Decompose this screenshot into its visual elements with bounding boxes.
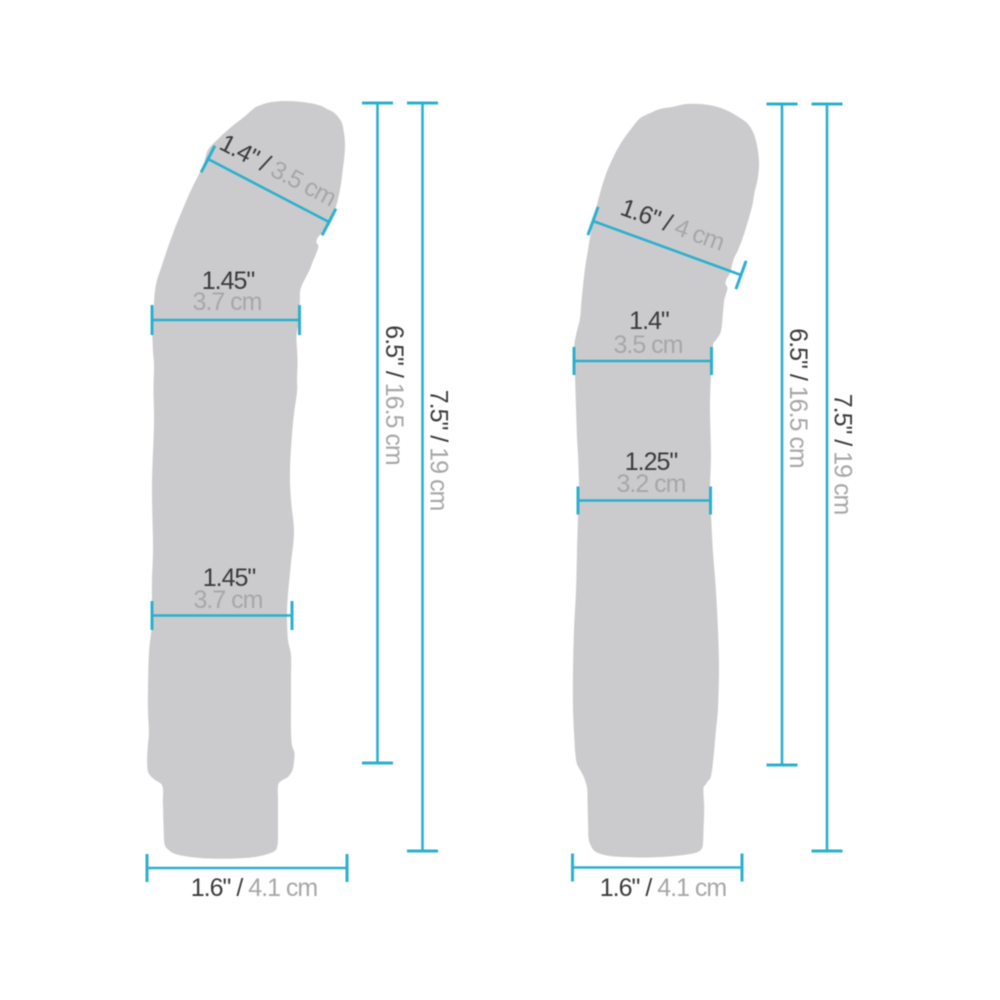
svg-text:1.6" / 4.1 cm: 1.6" / 4.1 cm <box>191 874 318 902</box>
svg-text:3.7 cm: 3.7 cm <box>192 288 261 316</box>
svg-text:6.5" / 16.5 cm: 6.5" / 16.5 cm <box>784 328 812 468</box>
svg-text:3.7 cm: 3.7 cm <box>193 586 262 614</box>
svg-text:7.5" / 19 cm: 7.5" / 19 cm <box>829 394 857 515</box>
svg-text:3.2 cm: 3.2 cm <box>616 470 685 498</box>
svg-text:6.5" / 16.5 cm: 6.5" / 16.5 cm <box>380 325 408 465</box>
svg-text:7.5" / 19 cm: 7.5" / 19 cm <box>425 390 453 511</box>
svg-text:1.6" / 4.1 cm: 1.6" / 4.1 cm <box>600 874 727 902</box>
svg-text:3.5 cm: 3.5 cm <box>613 331 682 359</box>
